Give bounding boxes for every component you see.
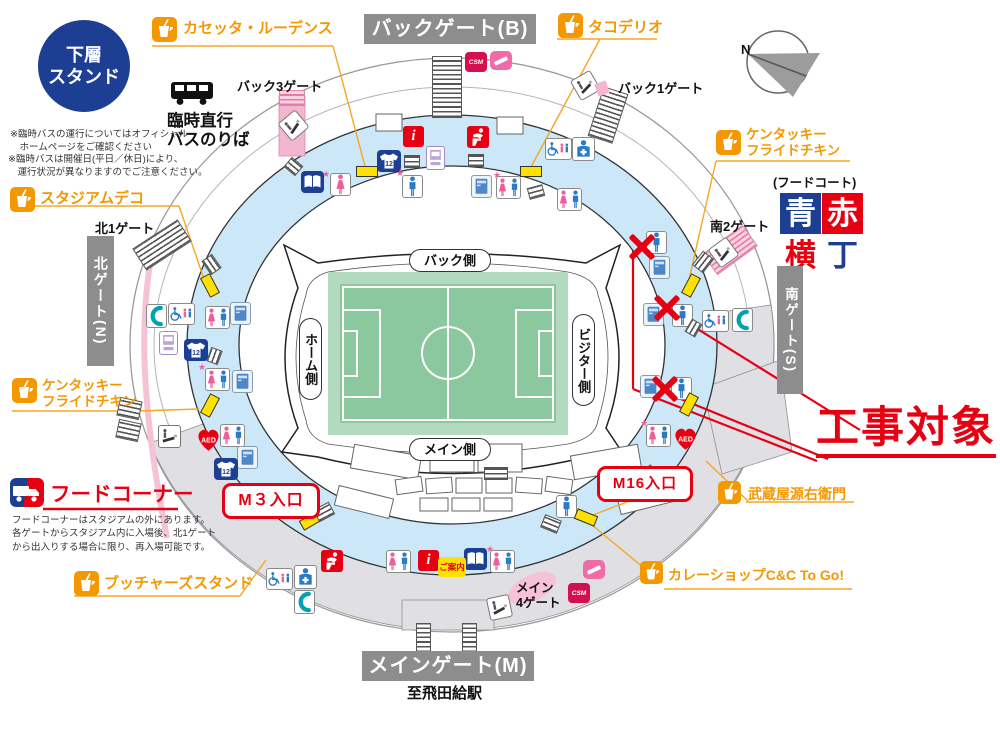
locker-icon [471, 175, 492, 198]
north1-gate-label: 北1ゲート [95, 221, 154, 236]
locker-icon [232, 370, 253, 393]
toiletmf-icon [386, 550, 411, 573]
food-corner-note: フードコーナーはスタジアムの外にあります。 各ゲートからスタジアム内に入場後、北… [12, 514, 216, 554]
accw-icon [266, 568, 293, 590]
phone-icon [732, 308, 753, 332]
shop-label-kasetta: カセッタ・ルーデンス [183, 20, 333, 38]
stairs-icon [416, 623, 431, 653]
compass-n-label: N [741, 42, 750, 57]
food-court-char-ao: 青 [780, 193, 821, 234]
accw-icon [168, 303, 195, 325]
field-back-side-pill: バック側 [409, 249, 491, 272]
csm-icon: CSM [568, 583, 590, 603]
toiletmf-icon [496, 176, 521, 199]
cigpink-icon [490, 51, 512, 70]
north-gate-label: 北ゲート(N) [87, 236, 114, 366]
shirt12-icon: 12 [214, 458, 238, 480]
main4-gate-label: メイン 4ゲート [516, 581, 560, 611]
south2-gate-label: 南2ゲート [710, 219, 769, 234]
vend-icon [426, 146, 445, 170]
m3-entrance-box: M３入口 [222, 483, 320, 519]
toiletm-icon [402, 175, 423, 198]
shop-label-tako: タコデリオ [588, 19, 663, 37]
svg-text:12: 12 [385, 161, 393, 168]
truck-icon [10, 478, 44, 507]
shop-label-kfc-right: ケンタッキー フライドチキン [746, 127, 840, 159]
infoi-icon: i [403, 126, 424, 147]
food-court-label: (フードコート) [773, 176, 856, 191]
locker-icon [230, 302, 251, 325]
stairs-icon [432, 56, 462, 118]
aed-icon: AED [672, 426, 699, 451]
lower-stand-badge: 下層 スタンド [38, 20, 130, 112]
phone-icon [294, 590, 315, 614]
accw-icon [545, 138, 572, 160]
book-icon [464, 548, 487, 570]
toiletmf-icon [646, 424, 671, 447]
svg-text:AED: AED [678, 436, 693, 443]
stairs-icon [404, 155, 420, 168]
stairs-icon [462, 623, 477, 653]
shop-label-butchers: ブッチャーズスタンド [104, 575, 253, 593]
babycare-icon [321, 550, 343, 572]
cup-icon [10, 187, 35, 212]
construction-x-icon [628, 233, 656, 261]
shop-label-musashiya: 武蔵屋源右衛門 [748, 486, 846, 503]
cup-icon [12, 378, 37, 403]
cup-icon [640, 561, 663, 584]
aed-icon: AED [195, 427, 222, 452]
babycare-icon [467, 126, 489, 148]
field-visitor-side-pill: ビジター側 [572, 314, 595, 406]
back-gate-label: バックゲート(B) [364, 14, 536, 44]
toiletmf-icon [205, 368, 230, 391]
svg-text:AED: AED [201, 437, 216, 444]
phone-icon [146, 304, 167, 328]
vend-icon [159, 331, 178, 355]
toiletmf-icon [205, 306, 230, 329]
m16-entrance-box: M16入口 [597, 466, 693, 502]
toiletmf-icon [220, 424, 245, 447]
cigpink-icon [583, 560, 605, 579]
shop-label-stadeco: スタジアムデコ [40, 190, 144, 208]
back3-gate-label: バック3ゲート [237, 79, 322, 94]
stadium-lower-stand-map: CSMi12★★★12★AED12i★CSM★AED 下層 スタンド カセッタ・… [0, 0, 1000, 751]
shop-label-curry: カレーショップC&C To Go! [668, 567, 844, 584]
food-court-char-cho: 丁 [822, 235, 863, 276]
cup-icon [74, 571, 99, 596]
back1-gate-label: バック1ゲート [618, 81, 703, 96]
bus-note-1: ※臨時バスの運行についてはオフィシャル ホームページをご確認ください [10, 128, 188, 155]
cup-icon [152, 17, 177, 42]
kiosk-icon [356, 166, 378, 177]
toiletm-icon [556, 495, 577, 518]
map-base [0, 0, 1000, 751]
smoking-icon [486, 594, 513, 621]
south-gate-label: 南ゲート(S) [777, 266, 803, 394]
firstaid-icon [572, 137, 595, 161]
stairs-icon [468, 154, 484, 167]
svg-text:12: 12 [192, 350, 200, 357]
cup-icon [718, 481, 741, 504]
guide-box: ご案内 [438, 557, 466, 577]
firstaid-icon [294, 565, 317, 589]
main-gate-label: メインゲート(M) [362, 651, 534, 681]
shop-label-kfc-left: ケンタッキー フライドチキン [42, 378, 136, 410]
toiletmf-icon [557, 188, 582, 211]
locker-icon [237, 446, 258, 469]
csm-icon: CSM [465, 52, 487, 72]
shirt12-icon: 12 [184, 339, 208, 361]
field-main-side-pill: メイン側 [409, 438, 491, 461]
food-corner-title: フードコーナー [50, 483, 194, 507]
infoi-icon: i [418, 550, 439, 571]
bus-note-2: ※臨時バスは開催日(平日／休日)により、 運行状況が異なりますのでご注意ください… [8, 153, 208, 180]
toiletmf-icon [490, 550, 515, 573]
station-label: 至飛田給駅 [407, 685, 482, 703]
field-home-side-pill: ホーム側 [299, 318, 322, 400]
construction-x-icon [653, 294, 681, 322]
svg-text:12: 12 [222, 469, 230, 476]
stairs-icon [484, 467, 508, 480]
construction-target-label: 工事対象 [816, 406, 996, 458]
toiletf-icon [330, 173, 351, 196]
accw-icon [702, 310, 729, 332]
construction-x-icon [651, 375, 679, 403]
smoking-icon [158, 425, 181, 448]
food-court-char-aka: 赤 [822, 193, 863, 234]
bus-icon [170, 80, 214, 107]
book-icon [301, 171, 324, 193]
kiosk-icon [520, 166, 542, 177]
cup-icon [716, 130, 741, 155]
cup-icon [558, 13, 583, 38]
